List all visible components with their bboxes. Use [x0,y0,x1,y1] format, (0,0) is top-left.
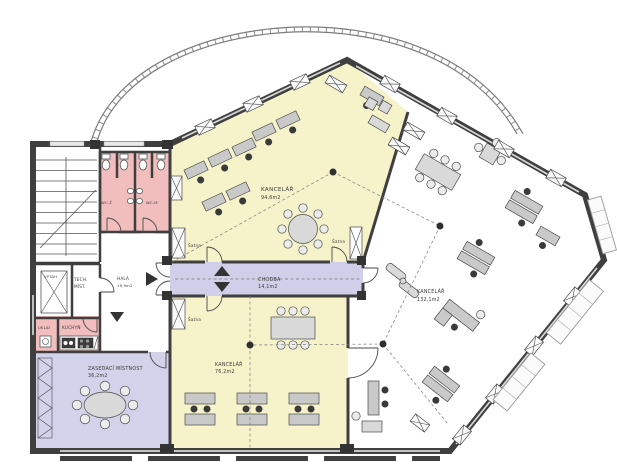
label-office-right: KANCELÁŘ [417,287,445,295]
staircase [36,157,97,256]
label-kitchen: KUCHYŇ [62,325,81,330]
cabinet [171,176,182,200]
label-elevator: VÝTAH [44,274,57,279]
meeting-table [411,146,466,199]
wardrobe-cabinet [172,228,185,258]
terrace-edge [60,456,440,461]
floor-plan-drawing: KANCELÁŘ 94,6m2 CHODBA 14,1m2 KANCELÁŘ 7… [0,0,617,469]
label-meeting-room: ZASEDACÍ MÍSTNOST [88,365,143,372]
label-wc-men: WC-M [146,200,158,205]
label-corridor-area: 14,1m2 [258,284,278,290]
desk [531,226,560,254]
cleaning-sink [40,336,51,347]
desk-workstation [434,290,486,342]
desk-workstation [352,381,389,432]
column [380,341,387,348]
label-cleaning: ÚKLID [38,325,50,330]
label-office-top-area: 94,6m2 [261,195,281,201]
label-office-top: KANCELÁŘ [261,185,294,193]
wardrobe-cabinet [172,299,185,329]
arrow-down-icon [110,312,124,322]
cabinet [410,414,430,432]
balconies [493,196,616,411]
label-corridor: CHODBA [258,277,281,283]
floor-plan-page: KANCELÁŘ 94,6m2 CHODBA 14,1m2 KANCELÁŘ 7… [0,0,617,469]
meeting-table [271,317,315,339]
label-hall-area: 19,9m2 [117,283,133,288]
desk-cluster [416,360,465,410]
label-wardrobe-3: Šatna [188,317,201,322]
meeting-oval-table [84,392,126,418]
toilet [139,154,147,170]
desk-cluster [453,234,499,282]
arrow-right-icon [146,272,158,286]
window [104,142,144,147]
label-office-bottom-area: 76,2m2 [215,369,235,375]
window [50,142,84,147]
toilet [120,154,128,170]
side-table [400,278,406,284]
label-office-right-area: 132,1m2 [417,297,440,303]
label-wardrobe-1: Šatna [188,243,201,248]
column [437,223,444,230]
cabinet [403,122,425,140]
column [247,342,254,349]
label-meeting-room-area: 36,2m2 [88,373,108,379]
label-tech-room-2: MÍST. [74,284,86,289]
column [330,169,337,176]
label-wc-women: WC-Ž [101,200,112,205]
wardrobe-cabinet [350,227,362,259]
toilet [102,154,110,170]
desk-cluster [501,183,547,231]
label-hall: HALA [117,276,129,281]
label-tech-room-1: TECH. [73,277,88,282]
toilet [157,154,165,170]
label-wardrobe-2: Šatna [332,239,345,244]
round-table [289,215,318,244]
